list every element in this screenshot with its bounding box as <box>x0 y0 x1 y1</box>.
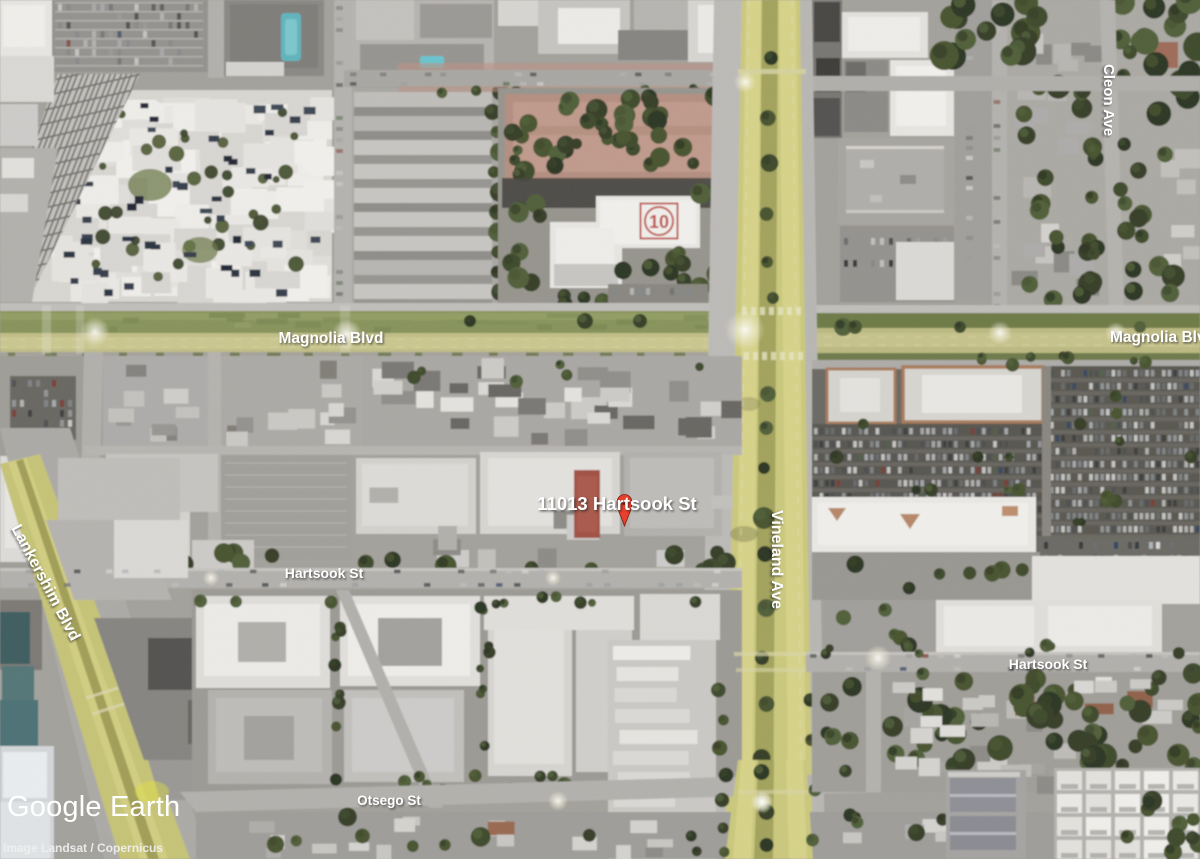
svg-text:Hartsook St: Hartsook St <box>1009 656 1088 672</box>
svg-text:Vineland Ave: Vineland Ave <box>768 510 785 609</box>
svg-text:11013 Hartsook St: 11013 Hartsook St <box>537 493 696 514</box>
svg-text:Google Earth: Google Earth <box>7 791 180 823</box>
svg-text:Image Landsat / Copernicus: Image Landsat / Copernicus <box>3 841 163 855</box>
svg-text:Hartsook St: Hartsook St <box>285 565 364 581</box>
svg-text:Magnolia Blvd: Magnolia Blvd <box>278 330 383 347</box>
svg-text:Magnolia Blv: Magnolia Blv <box>1110 329 1200 346</box>
svg-text:Cleon Ave: Cleon Ave <box>1100 64 1117 136</box>
svg-text:Otsego St: Otsego St <box>357 793 421 808</box>
